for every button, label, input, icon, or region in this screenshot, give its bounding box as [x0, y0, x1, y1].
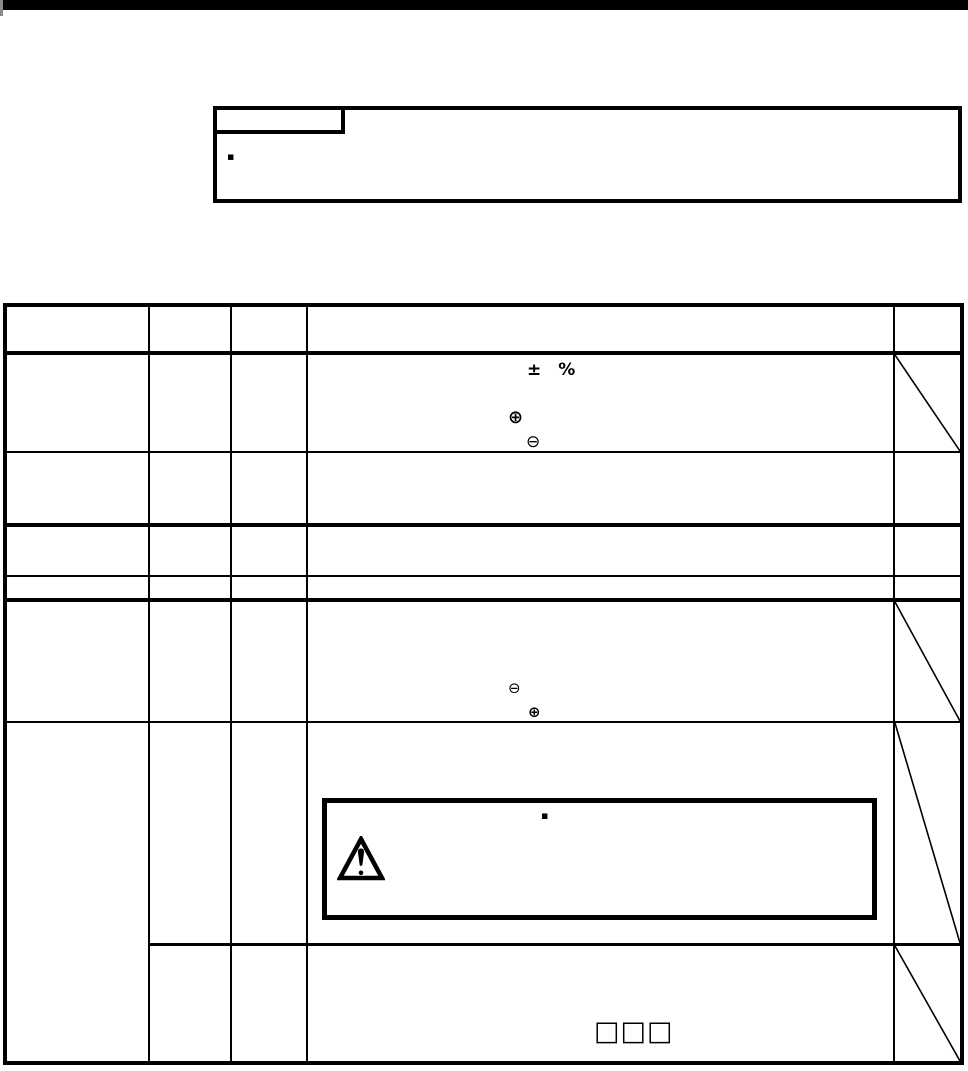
table-border-line	[960, 303, 964, 1065]
terminal-plus-icon: ⊕	[508, 409, 523, 427]
top-black-bar	[0, 0, 968, 10]
tolerance-sign: ±	[527, 360, 541, 380]
terminal-plus-icon: ⊕	[528, 705, 541, 720]
diagonal-strike	[895, 946, 960, 1061]
table-grid-line	[230, 303, 232, 1065]
table-grid-line	[306, 303, 308, 1065]
warning-icon	[337, 836, 385, 881]
tolerance-unit: %	[558, 360, 575, 380]
terminal-minus-icon: ⊖	[526, 434, 540, 451]
scan-edge-artifact	[0, 0, 3, 16]
diagonal-strike	[895, 355, 960, 451]
document-page: ▪ ±% ⊕ ⊖	[0, 0, 968, 1071]
caution-box: ▪	[322, 798, 877, 920]
tolerance-value: ±%	[527, 362, 575, 379]
terminal-minus-icon: ⊖	[508, 681, 521, 696]
callout-box: ▪	[213, 106, 962, 203]
diagonal-strike	[895, 602, 960, 721]
model-code-boxes: □□□	[594, 1018, 674, 1045]
bullet-square: ▪	[227, 154, 233, 160]
table-border-line	[3, 303, 7, 1065]
table-grid-line	[148, 943, 964, 946]
bullet-square: ▪	[541, 813, 547, 819]
callout-tab	[213, 106, 345, 134]
diagonal-strike	[895, 723, 960, 943]
table-grid-line	[148, 303, 150, 1065]
